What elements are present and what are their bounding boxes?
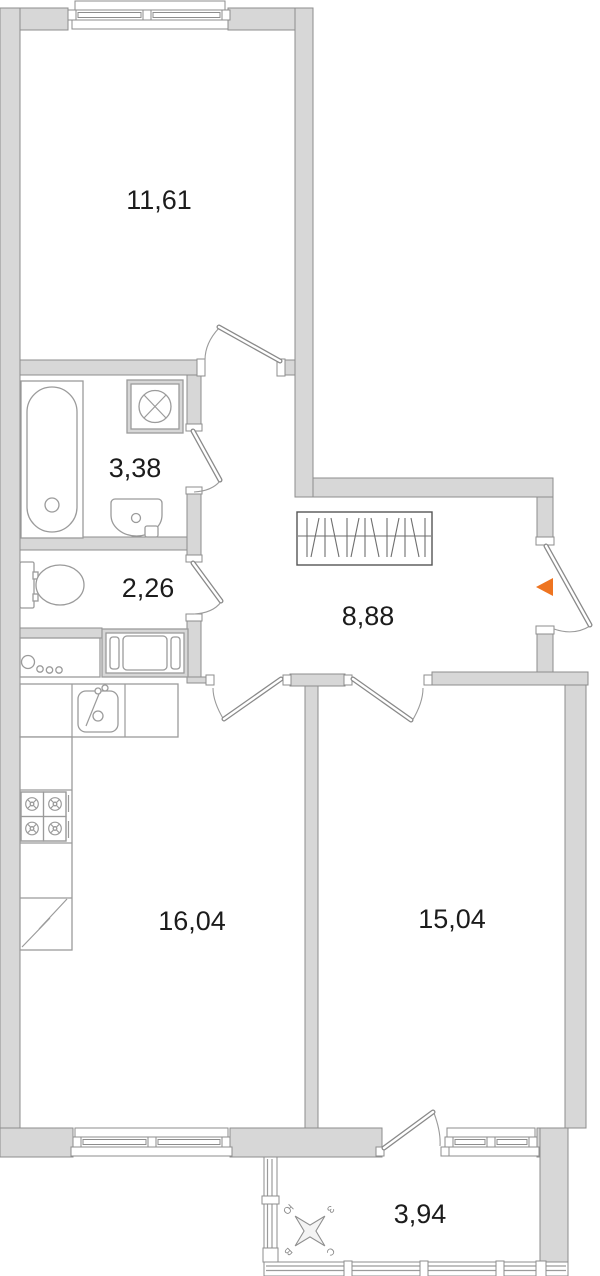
- toilet: [20, 562, 84, 608]
- room-label-bathroom: 3,38: [109, 453, 162, 483]
- door-bathroom: [186, 424, 220, 494]
- compass-south-label: Ю: [280, 1201, 295, 1216]
- bathtub: [21, 381, 83, 538]
- laundry-counter: [20, 638, 100, 677]
- floor-plan: С Ю В З 11,61 3,38 2,26 8,88 16,04 15,04…: [0, 0, 600, 1276]
- wardrobe: [297, 512, 432, 565]
- compass-north-label: С: [324, 1245, 337, 1258]
- door-living-room: [344, 675, 432, 721]
- room-label-hallway: 8,88: [342, 601, 395, 631]
- kitchen-sink: [78, 685, 118, 732]
- room-label-kitchen: 16,04: [158, 906, 226, 936]
- door-kitchen: [206, 675, 291, 720]
- walls: [0, 8, 588, 1266]
- stove: [21, 792, 69, 841]
- room-label-living-room: 15,04: [418, 904, 486, 934]
- window-living-room: [443, 1128, 539, 1156]
- door-bedroom: [197, 327, 285, 376]
- window-kitchen: [71, 1128, 232, 1156]
- compass-east-label: В: [281, 1245, 294, 1258]
- entrance-arrow-icon: [536, 578, 553, 596]
- compass-west-label: З: [324, 1203, 336, 1215]
- room-label-balcony: 3,94: [394, 1199, 447, 1229]
- ventilation-shaft: [102, 629, 188, 677]
- door-balcony: [376, 1112, 449, 1156]
- bathroom-sink: [111, 499, 162, 537]
- room-label-bedroom: 11,61: [126, 185, 192, 215]
- window-bedroom: [68, 1, 230, 29]
- washing-machine: [127, 380, 183, 433]
- door-wc: [186, 555, 221, 621]
- room-label-wc: 2,26: [122, 573, 175, 603]
